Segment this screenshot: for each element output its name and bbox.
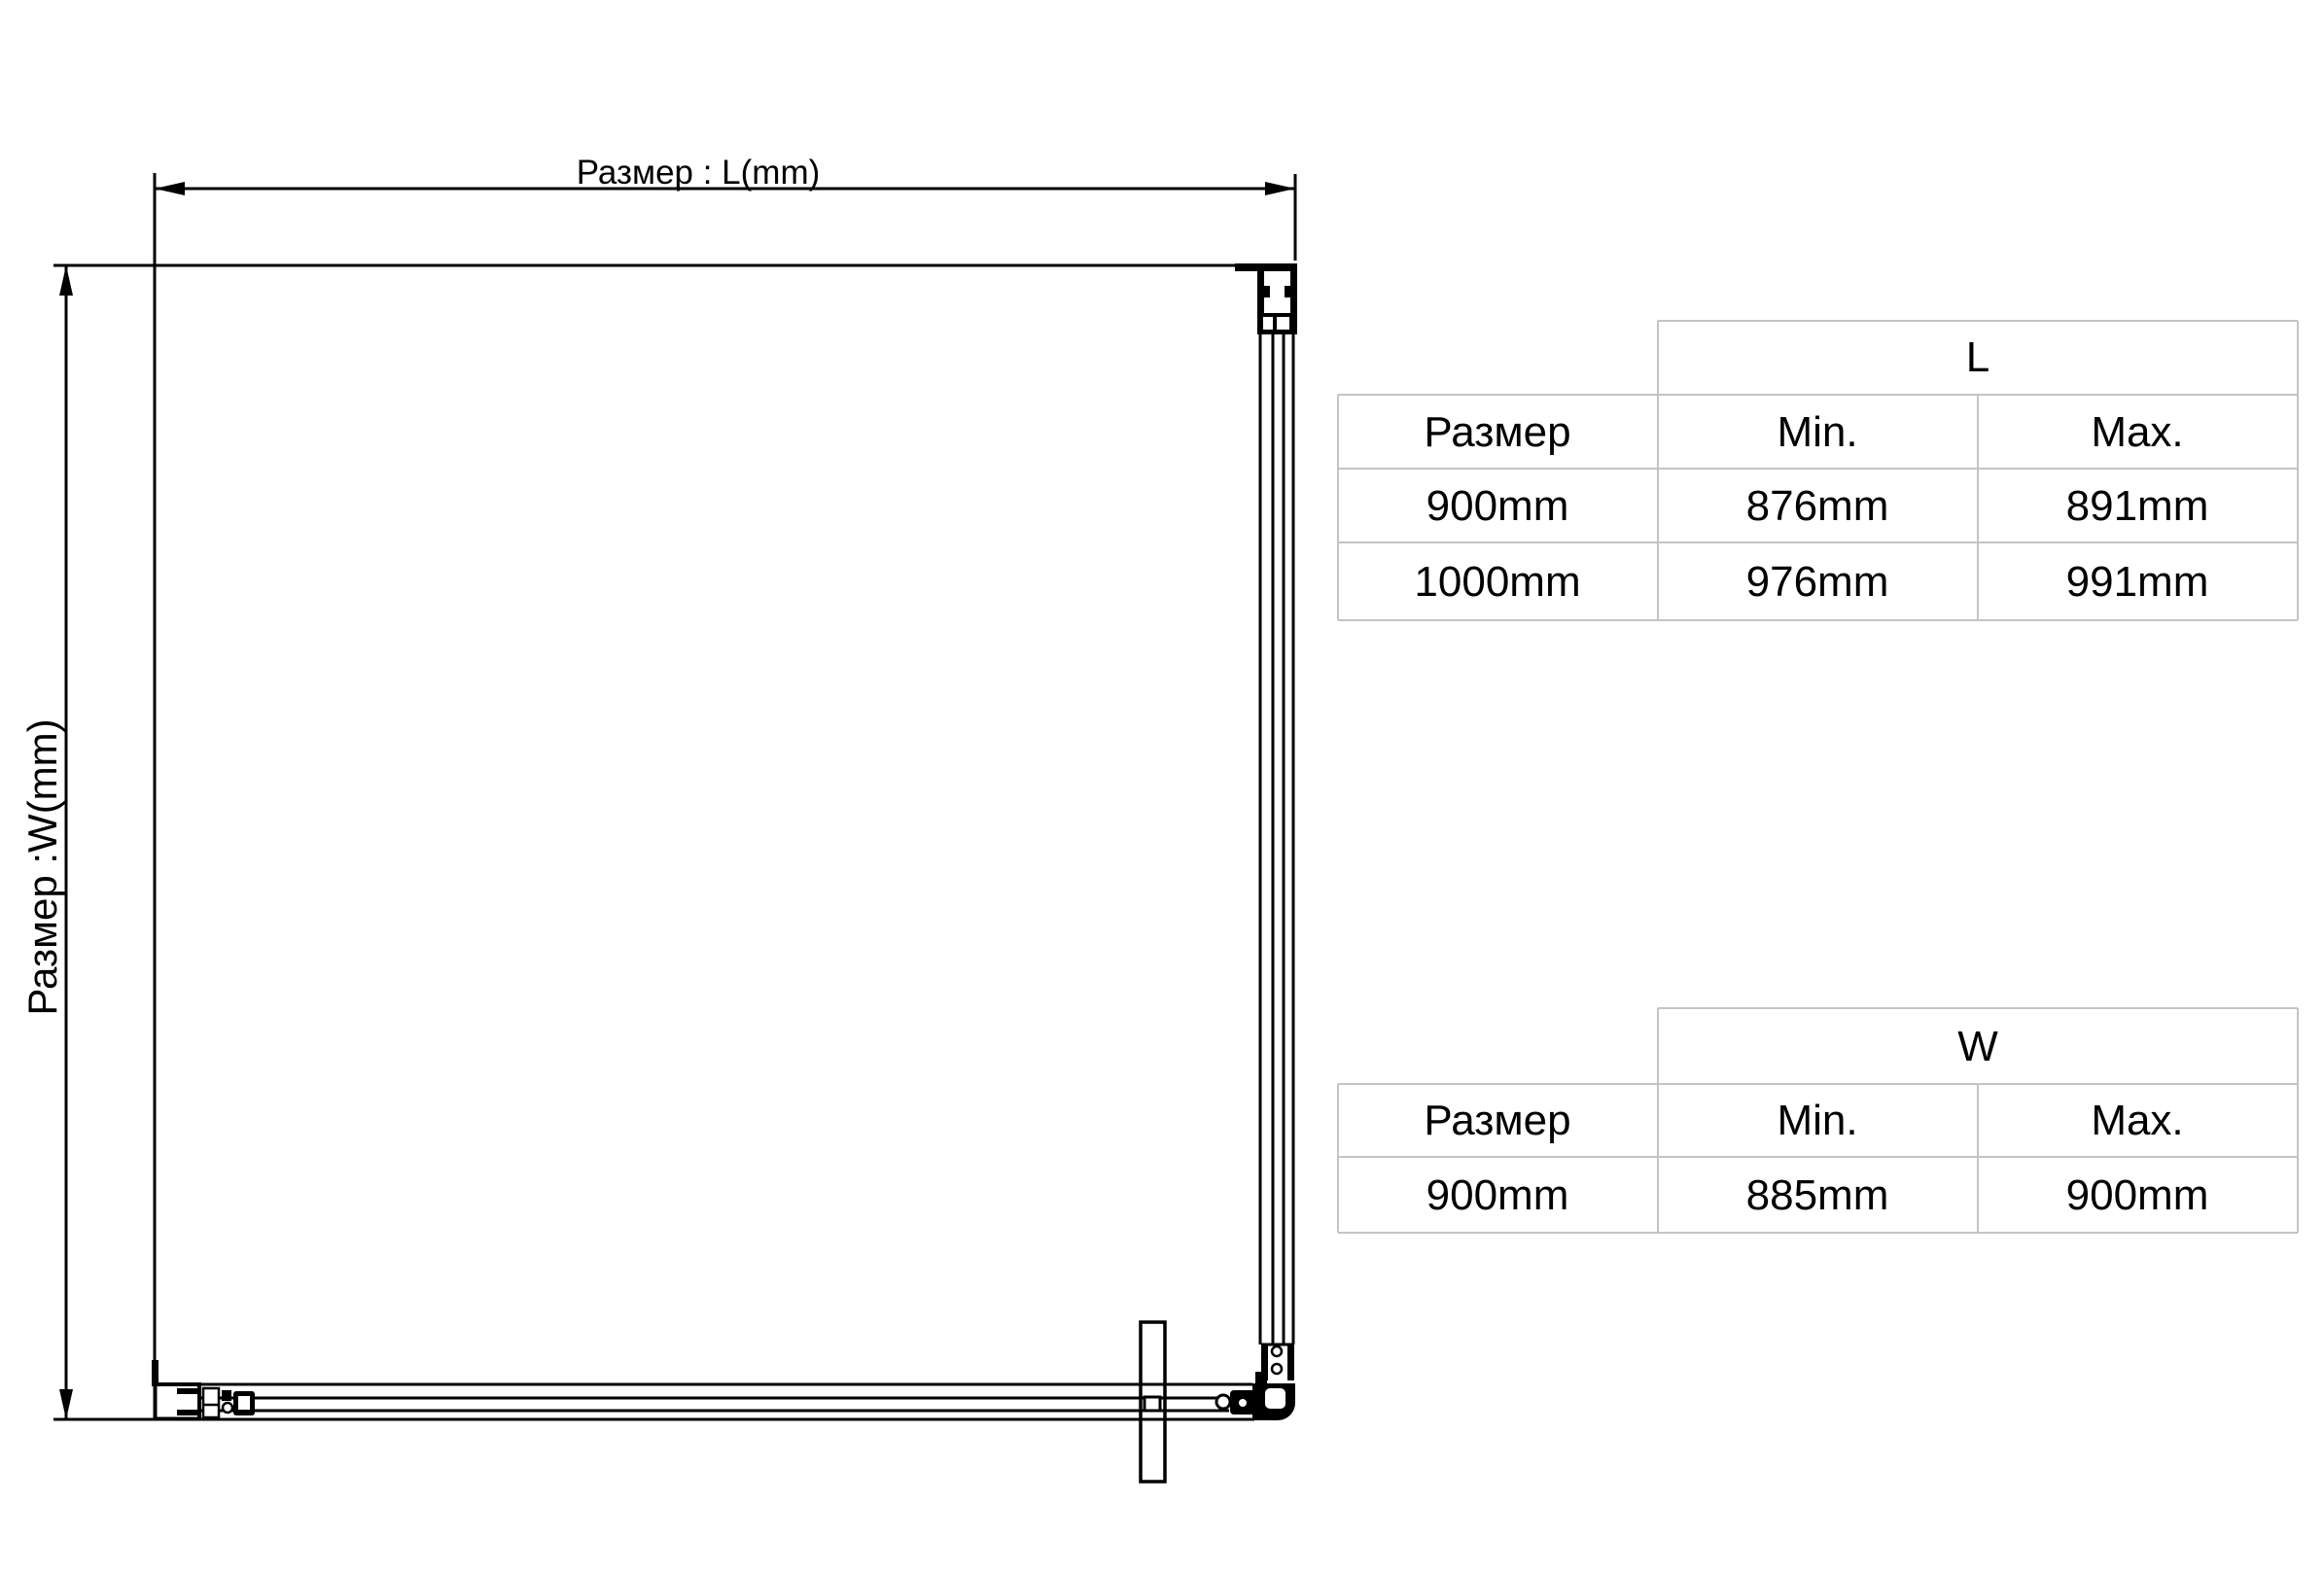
w-table-cell-max: 900mm	[2066, 1171, 2209, 1219]
shower-enclosure-dimension-diagram: Размер : L(mm) Размер :W(mm)	[0, 0, 2324, 1572]
roller-wheel-icon	[1216, 1395, 1230, 1409]
left-wall-thick-segment	[152, 1360, 158, 1386]
profile-left-band	[1257, 263, 1264, 315]
handle-connector	[1144, 1397, 1160, 1411]
l-table-cell-size: 1000mm	[1414, 558, 1580, 606]
profile-notch-right	[1285, 286, 1290, 297]
l-table-size-header: Размер	[1424, 408, 1570, 456]
l-table-min-header: Min.	[1777, 408, 1857, 456]
w-table-cell-min: 885mm	[1746, 1171, 1889, 1219]
corner-profile-tab-bottom	[177, 1410, 199, 1415]
l-table-row: 1000mm 976mm 991mm	[1414, 558, 2208, 606]
guide-block	[203, 1388, 219, 1417]
l-table-cell-max: 991mm	[2066, 558, 2209, 606]
top-wall-tab	[1235, 263, 1260, 271]
length-dimension-label: Размер : L(mm)	[577, 154, 821, 192]
bottom-clamp-right-band	[1287, 1344, 1294, 1380]
screw-icon	[1272, 1346, 1282, 1356]
corner-bracket-slot	[1265, 1388, 1285, 1409]
l-table-cell-min: 976mm	[1746, 558, 1889, 606]
roller-stop	[222, 1390, 231, 1401]
roller-axle-icon	[1239, 1399, 1247, 1407]
left-roller-assembly	[203, 1388, 255, 1417]
roller-wheel-icon	[223, 1403, 232, 1413]
screw-icon	[1272, 1364, 1282, 1374]
dimension-drawing-page: Размер : L(mm) Размер :W(mm)	[0, 0, 2324, 1572]
width-dimension-label: Размер :W(mm)	[19, 718, 65, 1015]
corner-profile-left	[156, 1384, 200, 1419]
l-table-cell-min: 876mm	[1746, 482, 1889, 530]
l-table-dimension-header: L	[1966, 333, 1989, 381]
l-table-cell-max: 891mm	[2066, 482, 2209, 530]
clamp-hole-left	[1263, 317, 1273, 330]
profile-notch-left	[1264, 286, 1270, 297]
profile-right-band	[1290, 263, 1297, 315]
roller-bracket-slot	[238, 1396, 250, 1410]
l-table-max-header: Max.	[2091, 408, 2183, 456]
clamp-hole-right	[1277, 317, 1289, 330]
corner-bracket-tab	[1255, 1372, 1267, 1384]
w-table-size-header: Размер	[1424, 1097, 1570, 1144]
w-table-dimension-header: W	[1957, 1023, 1998, 1070]
w-table-row: 900mm 885mm 900mm	[1426, 1171, 2209, 1219]
w-table-min-header: Min.	[1777, 1097, 1857, 1144]
corner-profile-tab-top	[177, 1388, 199, 1394]
w-table-max-header: Max.	[2091, 1097, 2183, 1144]
l-table-row: 900mm 876mm 891mm	[1426, 482, 2209, 530]
w-table-cell-size: 900mm	[1426, 1171, 1569, 1219]
l-table-cell-size: 900mm	[1426, 482, 1569, 530]
